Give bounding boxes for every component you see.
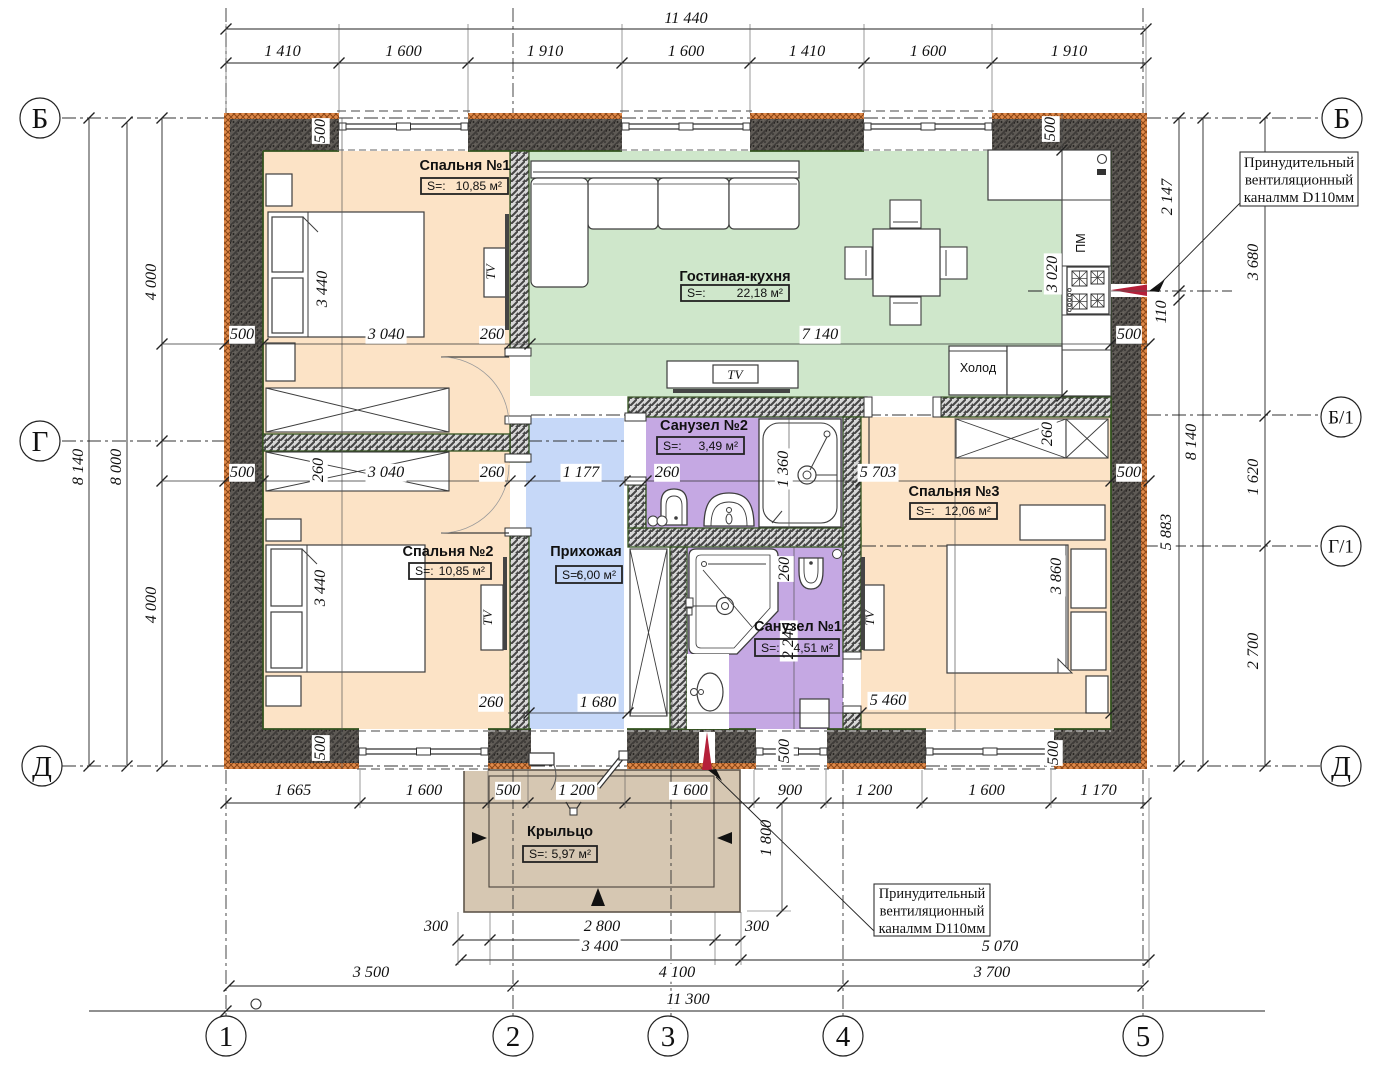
svg-text:3 040: 3 040 <box>367 325 404 343</box>
svg-text:1: 1 <box>219 1021 234 1053</box>
svg-text:Гостиная-кухня: Гостиная-кухня <box>679 269 790 285</box>
svg-text:2: 2 <box>506 1021 521 1053</box>
svg-text:TV: TV <box>727 367 744 382</box>
svg-text:Б: Б <box>1334 103 1351 135</box>
svg-text:22,18 м²: 22,18 м² <box>737 286 783 300</box>
svg-text:1 600: 1 600 <box>968 781 1004 799</box>
svg-text:3 500: 3 500 <box>352 963 389 981</box>
svg-text:500: 500 <box>230 463 254 481</box>
svg-text:500: 500 <box>1041 117 1059 141</box>
svg-text:S=:: S=: <box>529 847 548 861</box>
svg-text:1 600: 1 600 <box>668 42 704 60</box>
svg-text:1 910: 1 910 <box>1051 42 1087 60</box>
svg-text:5 883: 5 883 <box>1157 514 1175 550</box>
svg-text:1 410: 1 410 <box>264 42 300 60</box>
svg-text:2 700: 2 700 <box>1244 633 1262 669</box>
svg-text:1 177: 1 177 <box>563 463 600 481</box>
svg-text:1 360: 1 360 <box>774 451 792 487</box>
svg-text:TV: TV <box>483 262 498 279</box>
svg-text:Б/1: Б/1 <box>1328 407 1354 428</box>
svg-text:1 620: 1 620 <box>1244 459 1262 495</box>
svg-text:6,00 м²: 6,00 м² <box>576 568 616 582</box>
svg-text:каналмм D110мм: каналмм D110мм <box>1244 190 1355 206</box>
svg-text:TV: TV <box>480 608 495 625</box>
svg-text:1 410: 1 410 <box>789 42 825 60</box>
svg-text:1 680: 1 680 <box>580 693 616 711</box>
svg-text:Холод: Холод <box>960 361 997 375</box>
svg-text:Д: Д <box>32 751 52 783</box>
svg-text:500: 500 <box>775 739 793 763</box>
svg-text:Спальня №3: Спальня №3 <box>909 484 1000 500</box>
svg-text:12,06 м²: 12,06 м² <box>945 504 991 518</box>
svg-text:Принудительный: Принудительный <box>1244 155 1354 171</box>
svg-text:Санузел №1: Санузел №1 <box>754 619 842 635</box>
svg-text:3 680: 3 680 <box>1244 244 1262 281</box>
svg-text:5 703: 5 703 <box>860 463 896 481</box>
svg-text:3 860: 3 860 <box>1047 558 1065 595</box>
svg-text:3 700: 3 700 <box>973 963 1010 981</box>
svg-text:Санузел №2: Санузел №2 <box>660 418 748 434</box>
svg-text:7 140: 7 140 <box>802 325 838 343</box>
svg-text:260: 260 <box>309 458 327 482</box>
svg-text:110: 110 <box>1152 300 1170 323</box>
svg-text:10,85 м²: 10,85 м² <box>456 179 502 193</box>
svg-text:260: 260 <box>480 325 504 343</box>
svg-text:1 170: 1 170 <box>1080 781 1116 799</box>
svg-text:3 040: 3 040 <box>367 463 404 481</box>
svg-text:500: 500 <box>1117 325 1141 343</box>
svg-text:8 140: 8 140 <box>1182 424 1200 460</box>
svg-text:1 665: 1 665 <box>275 781 311 799</box>
svg-text:2 800: 2 800 <box>584 917 620 935</box>
svg-text:3: 3 <box>661 1021 676 1053</box>
svg-text:4 000: 4 000 <box>142 264 160 300</box>
svg-text:3 400: 3 400 <box>581 937 618 955</box>
svg-text:Б: Б <box>32 103 49 135</box>
svg-text:3 020: 3 020 <box>1043 256 1061 293</box>
svg-text:S=:: S=: <box>916 504 935 518</box>
svg-text:260: 260 <box>1038 422 1056 446</box>
svg-text:300: 300 <box>423 917 448 935</box>
svg-text:8 000: 8 000 <box>107 449 125 485</box>
svg-text:Г: Г <box>32 426 49 458</box>
svg-text:1 200: 1 200 <box>856 781 892 799</box>
svg-text:1 910: 1 910 <box>527 42 563 60</box>
svg-text:5 460: 5 460 <box>870 691 906 709</box>
svg-text:4: 4 <box>836 1021 851 1053</box>
svg-text:500: 500 <box>496 781 520 799</box>
svg-text:1 600: 1 600 <box>910 42 946 60</box>
svg-text:Крыльцо: Крыльцо <box>527 824 593 840</box>
svg-text:500: 500 <box>1044 741 1062 765</box>
svg-text:S=:: S=: <box>663 439 682 453</box>
svg-text:ПМ: ПМ <box>1074 233 1088 252</box>
svg-text:1 200: 1 200 <box>558 781 594 799</box>
svg-text:Прихожая: Прихожая <box>550 544 622 560</box>
svg-text:300: 300 <box>744 917 769 935</box>
svg-text:260: 260 <box>479 693 503 711</box>
svg-text:Д: Д <box>1331 751 1351 783</box>
svg-text:260: 260 <box>775 557 793 581</box>
svg-text:10,85 м²: 10,85 м² <box>439 564 485 578</box>
svg-text:500: 500 <box>1117 463 1141 481</box>
svg-text:260: 260 <box>655 463 679 481</box>
svg-text:4 000: 4 000 <box>142 587 160 623</box>
svg-text:каналмм D110мм: каналмм D110мм <box>879 921 986 937</box>
svg-text:500: 500 <box>311 736 329 760</box>
svg-text:500: 500 <box>311 119 329 143</box>
svg-text:900: 900 <box>778 781 802 799</box>
svg-text:5 070: 5 070 <box>982 937 1018 955</box>
svg-text:3,49 м²: 3,49 м² <box>698 439 738 453</box>
svg-text:500: 500 <box>230 325 254 343</box>
svg-text:Г/1: Г/1 <box>1328 536 1354 557</box>
svg-text:2 147: 2 147 <box>1158 178 1176 215</box>
svg-text:8 140: 8 140 <box>69 449 87 485</box>
svg-text:S=:: S=: <box>687 286 706 300</box>
svg-text:S=:: S=: <box>761 641 780 655</box>
svg-text:S=:: S=: <box>427 179 446 193</box>
svg-text:вентиляционный: вентиляционный <box>880 904 985 920</box>
svg-text:3 440: 3 440 <box>311 570 329 607</box>
svg-text:Принудительный: Принудительный <box>879 886 986 902</box>
svg-text:1 600: 1 600 <box>671 781 707 799</box>
svg-text:5,97 м²: 5,97 м² <box>551 847 591 861</box>
svg-text:260: 260 <box>480 463 504 481</box>
svg-text:1 600: 1 600 <box>406 781 442 799</box>
svg-text:4,51 м²: 4,51 м² <box>793 641 833 655</box>
svg-text:TV: TV <box>862 608 877 625</box>
svg-text:вентиляционный: вентиляционный <box>1245 173 1353 189</box>
svg-text:Спальня №2: Спальня №2 <box>403 544 494 560</box>
svg-text:5: 5 <box>1136 1021 1151 1053</box>
svg-text:4 100: 4 100 <box>659 963 695 981</box>
svg-text:11 300: 11 300 <box>666 990 709 1008</box>
svg-text:1 600: 1 600 <box>385 42 421 60</box>
svg-text:S=:: S=: <box>415 564 434 578</box>
svg-text:11 440: 11 440 <box>664 9 707 27</box>
svg-text:3 440: 3 440 <box>313 271 331 308</box>
svg-text:Спальня №1: Спальня №1 <box>420 158 511 174</box>
